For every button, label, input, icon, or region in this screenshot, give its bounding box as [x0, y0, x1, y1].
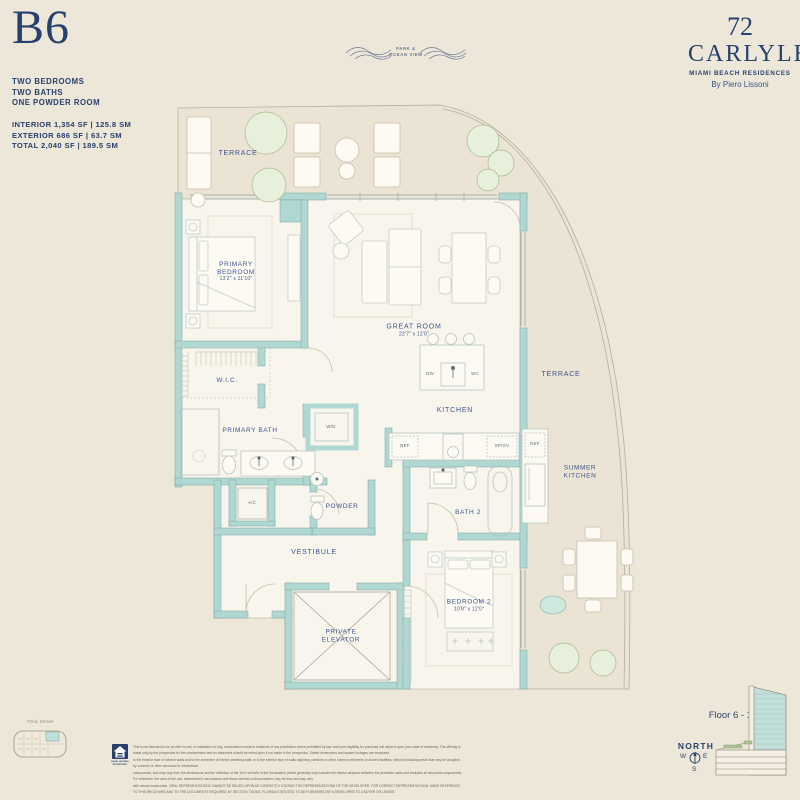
- side-table: [191, 193, 205, 207]
- oven: [443, 434, 463, 460]
- plant: [245, 112, 287, 154]
- lounger: [294, 123, 320, 153]
- nightstand: [186, 220, 200, 234]
- toilet: [464, 473, 476, 490]
- equal-housing-logo: [112, 744, 128, 759]
- plant: [477, 169, 499, 191]
- label-private-elevator: PRIVATE ELEVATOR: [322, 628, 360, 643]
- key-plan: [14, 731, 66, 757]
- pillow: [448, 560, 468, 569]
- lounger: [374, 123, 400, 153]
- label-wic: W.I.C.: [216, 377, 237, 385]
- toilet: [311, 503, 323, 520]
- label-great-room: GREAT ROOM 22'7" x 12'0": [386, 323, 441, 338]
- building-illustration: [716, 686, 786, 775]
- label-bath2: BATH 2: [455, 509, 481, 517]
- side-table: [333, 243, 349, 259]
- compass-icon: [690, 752, 700, 765]
- dining-chair: [439, 246, 451, 263]
- label-washer-dryer: W/D: [326, 425, 335, 429]
- label-terrace-top: TERRACE: [218, 150, 257, 158]
- floorplan-page: { "unit": { "name": "B6", "features": ["…: [0, 0, 800, 800]
- pillow: [199, 241, 208, 271]
- label-dishwasher: DW: [426, 372, 434, 376]
- label-bedroom2: BEDROOM 2 10'8" x 12'0": [447, 599, 491, 614]
- toilet: [223, 456, 236, 474]
- planter: [540, 596, 566, 614]
- lounger: [374, 157, 400, 187]
- wave-icon: [420, 47, 466, 59]
- round-table: [335, 138, 359, 162]
- outdoor-chair: [585, 600, 601, 612]
- label-primary-bedroom: PRIMARY BEDROOM 13'2" x 11'10": [217, 261, 255, 283]
- highlighted-unit: [46, 732, 59, 741]
- pillow: [470, 560, 490, 569]
- label-summer-refrigerator: REF: [530, 442, 539, 446]
- outdoor-dining-table: [577, 541, 617, 598]
- plant: [549, 643, 579, 673]
- outdoor-chair: [621, 575, 633, 591]
- sofa-chaise: [362, 241, 387, 303]
- headboard: [445, 551, 493, 558]
- pillow: [199, 275, 208, 305]
- label-kitchen: KITCHEN: [437, 407, 473, 415]
- label-vestibule: VESTIBULE: [291, 549, 337, 557]
- outdoor-chair: [563, 575, 575, 591]
- nightstand: [492, 552, 506, 567]
- dining-chair: [488, 246, 500, 263]
- label-summer-kitchen: SUMMER KITCHEN: [564, 464, 597, 479]
- toilet-tank: [222, 450, 236, 456]
- toilet-tank: [311, 496, 324, 502]
- outdoor-chair: [563, 549, 575, 565]
- dining-chair: [488, 277, 500, 294]
- dining-table: [452, 233, 486, 303]
- plant: [590, 650, 616, 676]
- outdoor-chair: [585, 527, 601, 539]
- nightstand: [428, 552, 442, 567]
- lounger: [294, 157, 320, 187]
- label-primary-bath: PRIMARY BATH: [222, 427, 277, 435]
- label-refrigerator: REF: [400, 444, 409, 448]
- toilet-tank: [464, 466, 477, 472]
- label-speed-oven: SP/OV: [495, 444, 509, 448]
- dresser: [288, 235, 300, 301]
- label-terrace-right: TERRACE: [541, 371, 580, 379]
- label-powder: POWDER: [326, 503, 359, 511]
- outdoor-chair: [621, 549, 633, 565]
- headboard: [189, 237, 197, 311]
- dining-chair: [439, 277, 451, 294]
- wave-icon: [346, 47, 392, 59]
- faucet: [451, 366, 455, 370]
- label-ac: A/C: [248, 501, 256, 505]
- floor-plan-canvas: [0, 0, 800, 800]
- bar-stool: [446, 334, 457, 345]
- double-vanity: [241, 451, 315, 476]
- round-chair: [339, 163, 355, 179]
- label-wine-cooler: WC: [471, 372, 479, 376]
- nightstand: [186, 314, 200, 328]
- plant: [252, 168, 286, 202]
- bar-stool: [464, 334, 475, 345]
